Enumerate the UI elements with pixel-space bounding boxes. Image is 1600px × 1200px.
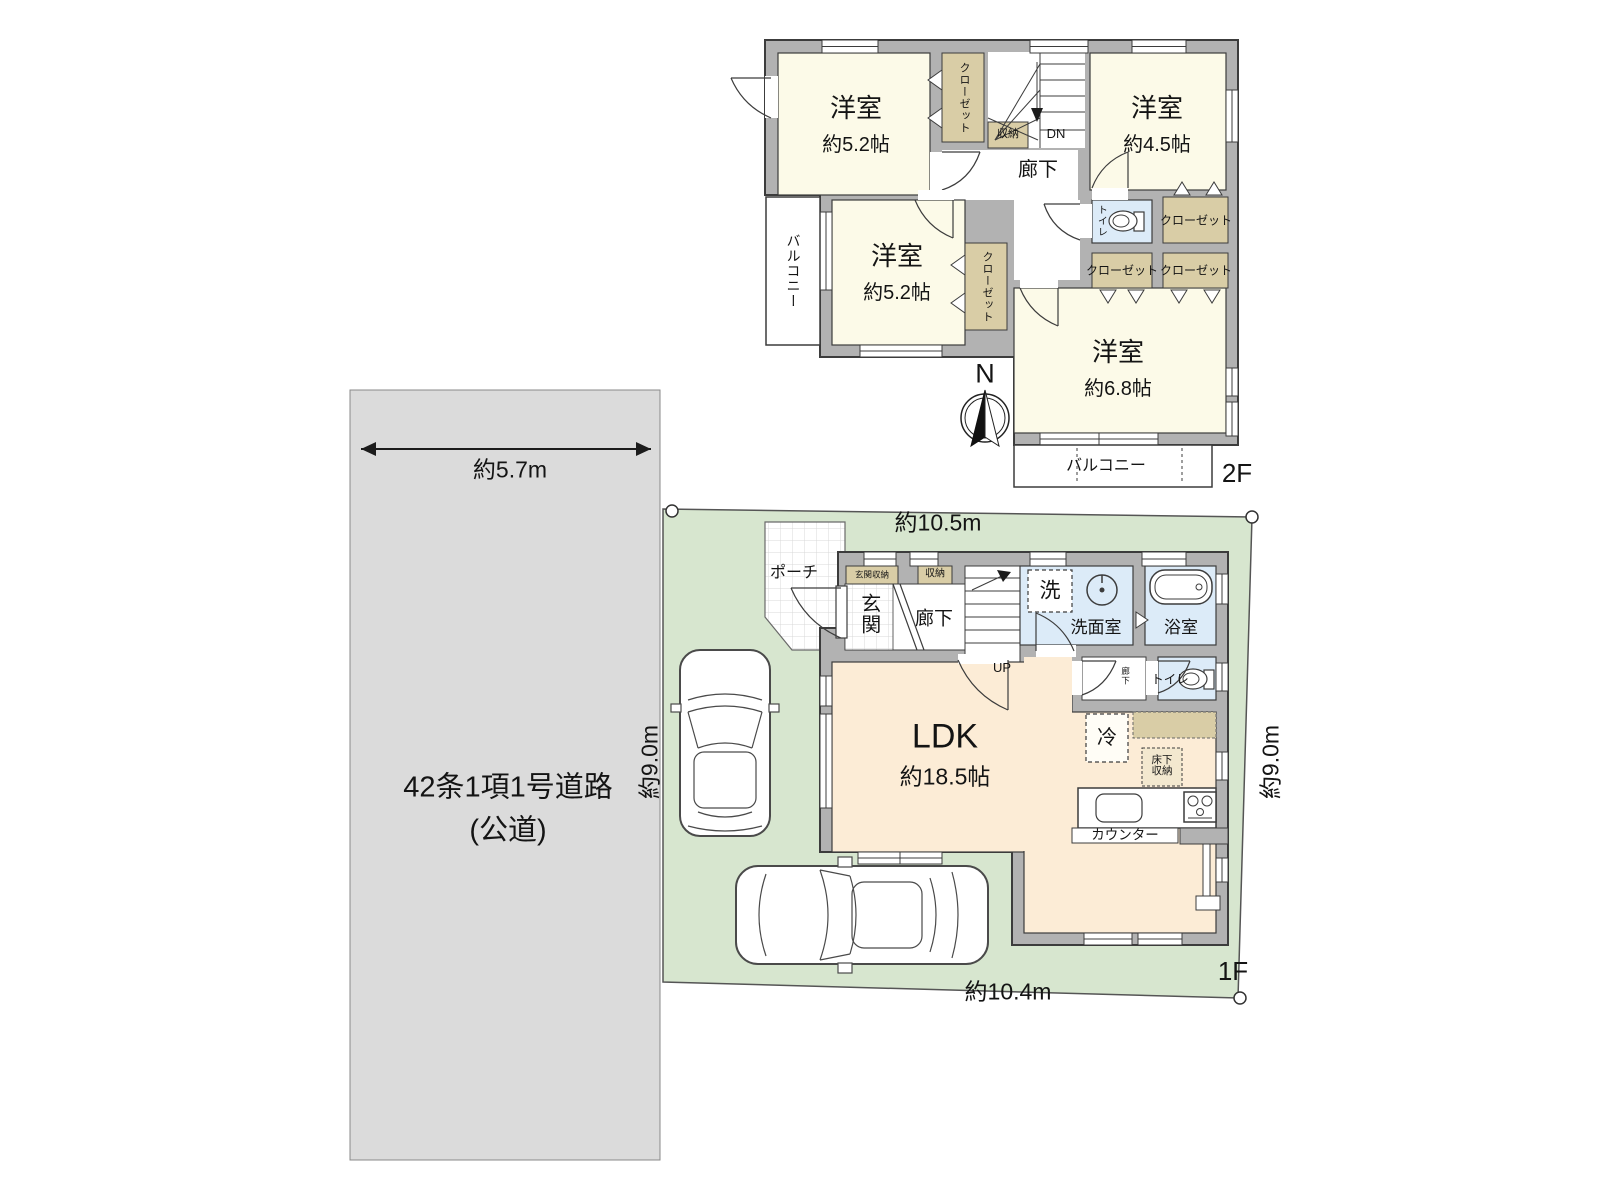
survey-point (1234, 992, 1246, 1004)
stairs-up-label: UP (993, 661, 1011, 675)
toilet-1f-label: トイレ (1151, 673, 1189, 687)
toilet-2f-label: トイレ (1095, 205, 1106, 238)
ldk-name: LDK (912, 719, 978, 756)
toilet-icon-2f (1109, 211, 1144, 231)
closet-4-label: クローゼット (1160, 265, 1232, 278)
western-room-a (778, 53, 930, 195)
hallway-2f-label: 廊下 (1018, 160, 1058, 182)
room-d-size: 約6.8帖 (1084, 379, 1152, 401)
storage-2f-label: 収納 (997, 129, 1019, 141)
bathtub-icon (1150, 570, 1212, 604)
site-bottom-dimension: 約10.4m (965, 980, 1052, 1005)
site-right-dimension: 約9.0m (1259, 725, 1284, 799)
closet-2-label: クローゼット (1160, 215, 1232, 228)
porch-label: ポーチ (770, 564, 818, 581)
car-icon-vertical (671, 650, 779, 836)
floor1-label: 1F (1218, 957, 1248, 985)
entrance-storage-label: 玄関収納 (855, 570, 889, 579)
room-a-name: 洋室 (830, 94, 882, 122)
room-c-size: 約5.2帖 (863, 283, 931, 305)
hallway-1f-label: 廊下 (915, 610, 953, 631)
road-name-line2: (公道) (469, 815, 546, 846)
washroom-label: 洗面室 (1071, 619, 1122, 637)
closet-3-label: クローゼット (1086, 265, 1158, 278)
compass-north-label: N (975, 359, 995, 388)
room-b-size: 約4.5帖 (1123, 135, 1191, 157)
ldk-size: 約18.5帖 (900, 765, 991, 790)
small-hall (1082, 657, 1146, 700)
kitchen-cabinet (1133, 712, 1216, 738)
room-c-name: 洋室 (871, 242, 923, 270)
washer-label: 洗 (1040, 581, 1061, 604)
counter-label: カウンター (1091, 829, 1159, 844)
road-width-dimension: 約5.7m (473, 458, 547, 483)
floorplan-page: 約5.7m 42条1項1号道路 (公道) 約10.5m 約10.4m 約9.0m… (0, 0, 1600, 1200)
site-left-dimension: 約9.0m (638, 725, 663, 799)
survey-point (1246, 511, 1258, 523)
stairs-up (965, 566, 1020, 664)
compass-icon (961, 390, 1009, 446)
room-a-size: 約5.2帖 (822, 135, 890, 157)
car-icon-horizontal (736, 857, 988, 973)
underfloor-storage-label: 床下 収納 (1152, 755, 1173, 777)
closet-1-label: クローゼット (957, 62, 969, 134)
refrigerator-label: 冷 (1097, 728, 1117, 750)
bathroom-label: 浴室 (1164, 619, 1198, 637)
survey-point (666, 505, 678, 517)
road-name-line1: 42条1項1号道路 (403, 772, 613, 803)
storage-1f-label: 収納 (925, 570, 945, 581)
stove-icon (1184, 792, 1216, 822)
stairs-down-label: DN (1047, 127, 1066, 141)
western-room-c (832, 200, 965, 345)
small-hall-label: 廊下 (1120, 667, 1129, 686)
closet-5-label: クローゼット (980, 251, 992, 323)
room-d-name: 洋室 (1092, 338, 1144, 366)
balcony-bottom-label: バルコニー (1066, 457, 1146, 474)
room-b-name: 洋室 (1131, 94, 1183, 122)
site-top-dimension: 約10.5m (895, 511, 982, 536)
entrance-label: 玄関 (857, 593, 879, 635)
floor2-label: 2F (1222, 459, 1252, 487)
balcony-left-label: バルコニー (785, 234, 800, 309)
floorplan-canvas (0, 0, 1600, 1200)
kitchen-sink-icon (1096, 794, 1142, 822)
